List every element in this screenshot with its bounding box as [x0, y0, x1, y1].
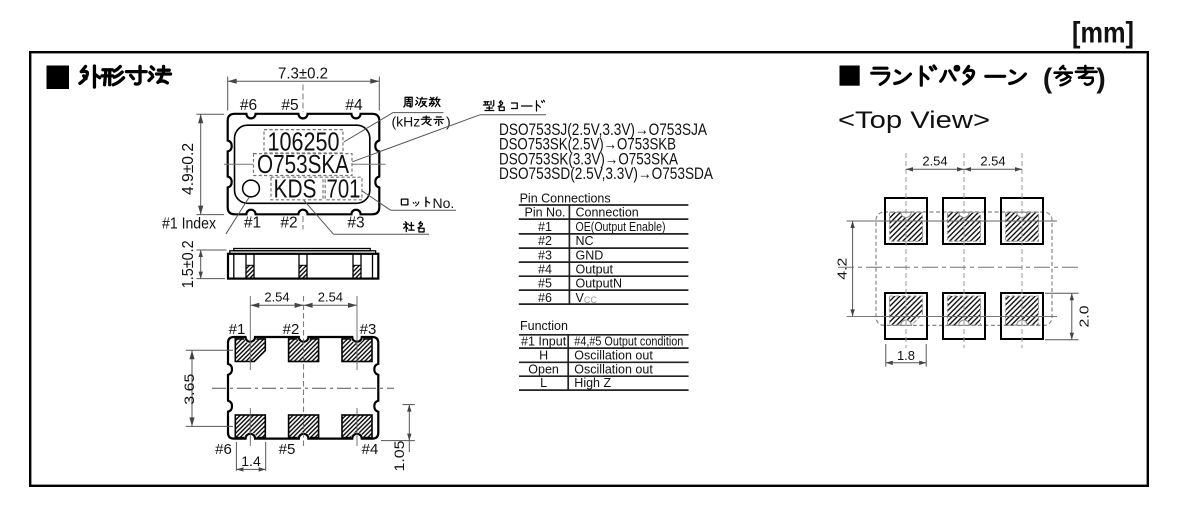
svg-text:NC: NC: [576, 234, 594, 248]
svg-text:): ): [1096, 63, 1105, 94]
svg-text:Oscillation out: Oscillation out: [574, 362, 653, 376]
svg-text:Function: Function: [520, 319, 568, 333]
svg-text:Pin No.: Pin No.: [525, 205, 566, 219]
svg-text:DSO753SD(2.5V,3.3V)→O753SDA: DSO753SD(2.5V,3.3V)→O753SDA: [499, 164, 714, 183]
svg-text:1.8: 1.8: [897, 348, 915, 363]
svg-text:Pin Connections: Pin Connections: [520, 192, 611, 206]
svg-text:#2: #2: [283, 321, 300, 338]
svg-text:3.65: 3.65: [181, 373, 197, 404]
svg-text:L: L: [540, 376, 547, 390]
svg-text:1.5±0.2: 1.5±0.2: [180, 240, 197, 288]
svg-text:2.0: 2.0: [1077, 306, 1092, 328]
svg-text:#5: #5: [538, 277, 552, 291]
svg-text:#1: #1: [538, 220, 552, 234]
svg-text:#3: #3: [360, 321, 377, 338]
svg-text:701: 701: [327, 174, 361, 204]
svg-text:#4: #4: [538, 263, 552, 277]
svg-text:2.54: 2.54: [980, 154, 1005, 169]
svg-text:2.54: 2.54: [318, 290, 343, 305]
svg-text:#4,#5 Output condition: #4,#5 Output condition: [574, 334, 683, 348]
svg-text:#2: #2: [280, 215, 297, 232]
svg-text:#5: #5: [279, 441, 296, 458]
svg-text:Oscillation out: Oscillation out: [574, 348, 653, 362]
svg-text:#1 Input: #1 Input: [521, 334, 567, 348]
svg-text:4.9±0.2: 4.9±0.2: [180, 143, 197, 195]
svg-text:#6: #6: [538, 291, 552, 305]
svg-text:#6: #6: [240, 97, 257, 114]
svg-text:<Top View>: <Top View>: [838, 107, 990, 134]
svg-text:OE(Output Enable): OE(Output Enable): [576, 220, 666, 234]
svg-text:#3: #3: [538, 248, 552, 262]
svg-text:#4: #4: [345, 97, 363, 114]
svg-text:#5: #5: [281, 97, 298, 114]
svg-text:2.54: 2.54: [922, 154, 947, 169]
svg-text:4.2: 4.2: [835, 258, 850, 280]
svg-text:#1: #1: [229, 321, 246, 338]
svg-text:GND: GND: [576, 248, 604, 262]
svg-text:Output: Output: [576, 263, 614, 277]
svg-text:[mm]: [mm]: [1072, 17, 1134, 50]
svg-text:1.4: 1.4: [241, 453, 261, 469]
svg-text:#1: #1: [244, 215, 261, 232]
svg-text:No.: No.: [433, 195, 455, 211]
svg-text:Open: Open: [528, 362, 559, 376]
svg-text:H: H: [539, 348, 548, 362]
svg-text:#4: #4: [362, 441, 379, 458]
svg-text:#2: #2: [538, 234, 552, 248]
svg-text:OutputN: OutputN: [576, 277, 623, 291]
svg-text:#6: #6: [215, 441, 232, 458]
svg-text:2.54: 2.54: [264, 290, 289, 305]
svg-text:7.3±0.2: 7.3±0.2: [278, 65, 328, 82]
svg-text:KDS: KDS: [274, 174, 317, 204]
svg-text:#1 Index: #1 Index: [162, 216, 216, 233]
svg-text:(kHz: (kHz: [392, 114, 421, 130]
svg-text:#3: #3: [347, 215, 364, 232]
svg-text:(: (: [1043, 63, 1053, 94]
svg-text:High Z: High Z: [574, 376, 611, 390]
svg-text:1.05: 1.05: [391, 440, 407, 471]
svg-text:Connection: Connection: [576, 205, 639, 219]
